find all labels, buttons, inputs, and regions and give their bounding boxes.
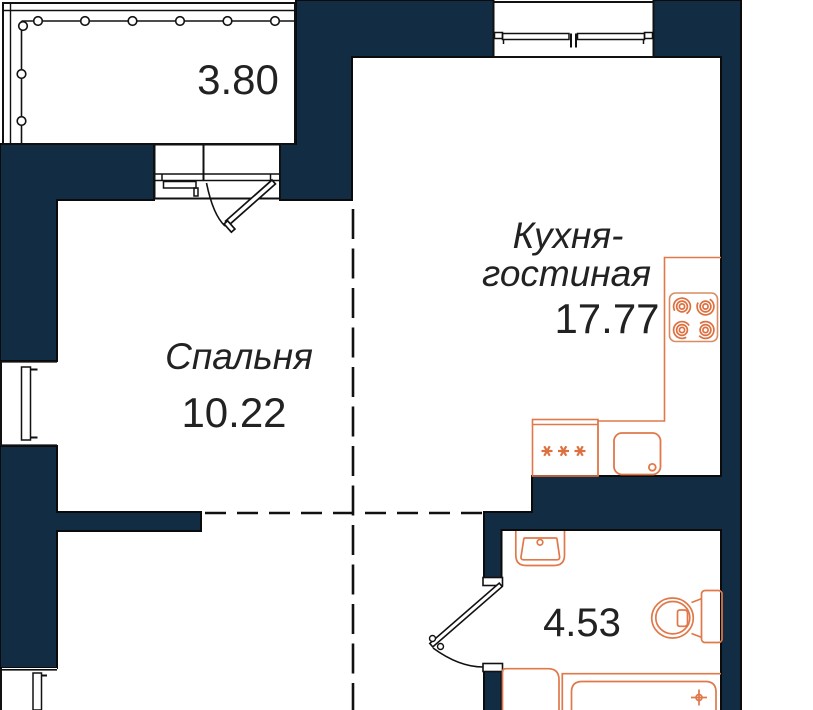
svg-text:10.22: 10.22 [181,389,286,436]
svg-text:гостиная: гостиная [482,253,651,294]
svg-text:4.53: 4.53 [543,601,621,645]
svg-text:3.80: 3.80 [197,56,279,103]
svg-text:17.77: 17.77 [554,295,659,342]
svg-text:Кухня-: Кухня- [513,215,624,256]
svg-text:Спальня: Спальня [165,336,313,377]
